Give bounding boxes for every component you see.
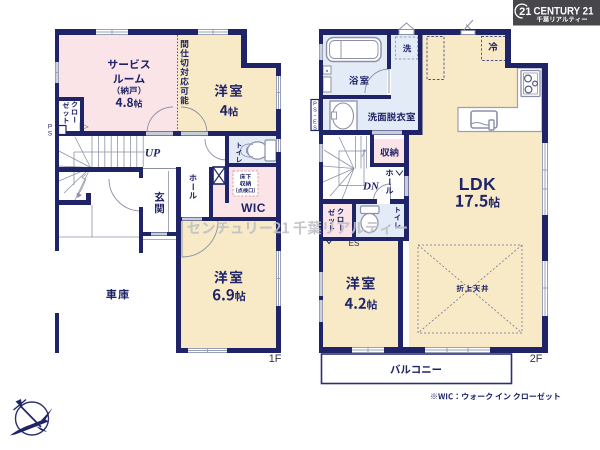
svg-text:DN: DN — [362, 181, 380, 193]
svg-text:ES: ES — [349, 239, 360, 248]
svg-text:S: S — [313, 126, 317, 132]
svg-text:S: S — [48, 131, 53, 138]
svg-text:2F: 2F — [530, 353, 543, 365]
svg-text:WIC: WIC — [241, 201, 266, 215]
svg-text:21: 21 — [519, 6, 531, 18]
svg-text:1F: 1F — [269, 353, 282, 365]
svg-text:CENTURY 21: CENTURY 21 — [534, 5, 594, 17]
svg-text:P: P — [48, 124, 52, 131]
svg-text:UP: UP — [145, 148, 161, 160]
svg-text:LDK: LDK — [459, 174, 496, 194]
